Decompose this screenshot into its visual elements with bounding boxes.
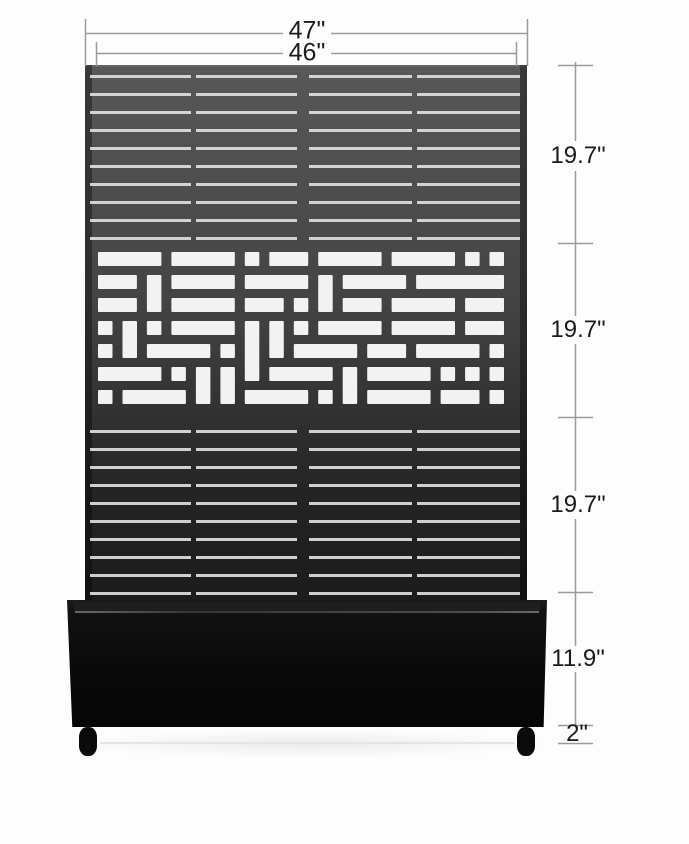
lattice-cutout: [416, 275, 504, 289]
caster-wheel-left: [79, 727, 97, 756]
lattice-cutout: [196, 367, 211, 404]
lattice-cutout: [98, 367, 161, 381]
slat-column: [309, 75, 412, 241]
slat-section-top: [85, 75, 527, 241]
slat-column: [90, 430, 191, 596]
caster-wheel-right: [517, 727, 535, 756]
lattice-cutout: [441, 390, 480, 404]
planter-front-rim: [75, 611, 539, 613]
lattice-cutout: [490, 252, 505, 266]
lattice-cutout: [465, 298, 504, 312]
lattice-cutout: [245, 321, 259, 381]
width-inner-dimension-label: 46": [289, 41, 326, 66]
lattice-cutout: [367, 367, 430, 381]
lattice-cutout: [392, 252, 455, 266]
height-label-bottom-section: 19.7": [550, 493, 605, 517]
slat-column: [417, 430, 520, 596]
lattice-cutout: [392, 298, 455, 312]
lattice-cutout: [343, 298, 382, 312]
lattice-cutout: [318, 252, 381, 266]
lattice-cutout: [294, 321, 309, 335]
lattice-cutout: [147, 321, 162, 335]
lattice-cutout: [465, 367, 480, 381]
lattice-cutout: [490, 390, 505, 404]
lattice-cutout: [98, 344, 113, 358]
floor-shadow: [62, 730, 552, 758]
floor-line: [100, 742, 515, 744]
lattice-cutout: [147, 344, 210, 358]
lattice-cutout: [245, 298, 284, 312]
lattice-cutout: [98, 252, 161, 266]
lattice-cutout: [123, 390, 186, 404]
lattice-cutout: [269, 321, 284, 358]
lattice-cutout: [98, 298, 137, 312]
lattice-cutout: [98, 321, 113, 335]
lattice-cutout: [294, 298, 309, 312]
product-dimension-diagram: 47" 46" 19.7" 19.7" 19.7" 11.9" 2": [0, 0, 689, 844]
lattice-cutout: [220, 344, 235, 358]
lattice-cutout: [123, 321, 138, 358]
lattice-cutout: [245, 252, 259, 266]
lattice-cutout: [98, 275, 137, 289]
screen-panel: [85, 65, 527, 600]
lattice-cutout: [441, 367, 456, 381]
lattice-cutout: [269, 367, 332, 381]
lattice-cutout: [392, 321, 455, 335]
height-label-top-section: 19.7": [550, 144, 605, 168]
lattice-cutout: [318, 275, 333, 312]
lattice-cutout: [343, 367, 358, 404]
lattice-pattern-section: [85, 243, 527, 417]
lattice-cutout: [343, 275, 406, 289]
lattice-cutout: [465, 321, 504, 335]
planter-box: [67, 600, 547, 727]
slat-column: [90, 75, 191, 241]
lattice-cutout: [245, 275, 308, 289]
height-label-planter-box: 11.9": [551, 647, 604, 671]
height-label-lattice-section: 19.7": [550, 318, 605, 342]
lattice-cutout: [367, 344, 406, 358]
lattice-cutout: [367, 390, 430, 404]
lattice-cutout: [171, 321, 234, 335]
slat-section-bottom: [85, 430, 527, 596]
lattice-cutout: [171, 367, 186, 381]
height-label-caster: 2": [566, 722, 588, 746]
lattice-cutout: [465, 252, 480, 266]
lattice-cutout: [171, 252, 234, 266]
lattice-cutout: [318, 390, 333, 404]
slat-column: [417, 75, 520, 241]
lattice-cutout: [490, 367, 505, 381]
lattice-cutout: [98, 390, 113, 404]
lattice-cutout: [490, 344, 505, 358]
lattice-cutout: [269, 252, 308, 266]
lattice-cutout: [245, 390, 308, 404]
lattice-cutout: [147, 275, 162, 312]
lattice-cutout: [416, 344, 479, 358]
planter-opening: [74, 602, 540, 611]
lattice-cutout: [171, 298, 234, 312]
lattice-cutout: [220, 367, 235, 404]
lattice-cutout: [171, 275, 234, 289]
slat-column: [309, 430, 412, 596]
slat-column: [196, 430, 297, 596]
lattice-cutout: [294, 344, 357, 358]
slat-column: [196, 75, 297, 241]
lattice-cutout: [318, 321, 381, 335]
